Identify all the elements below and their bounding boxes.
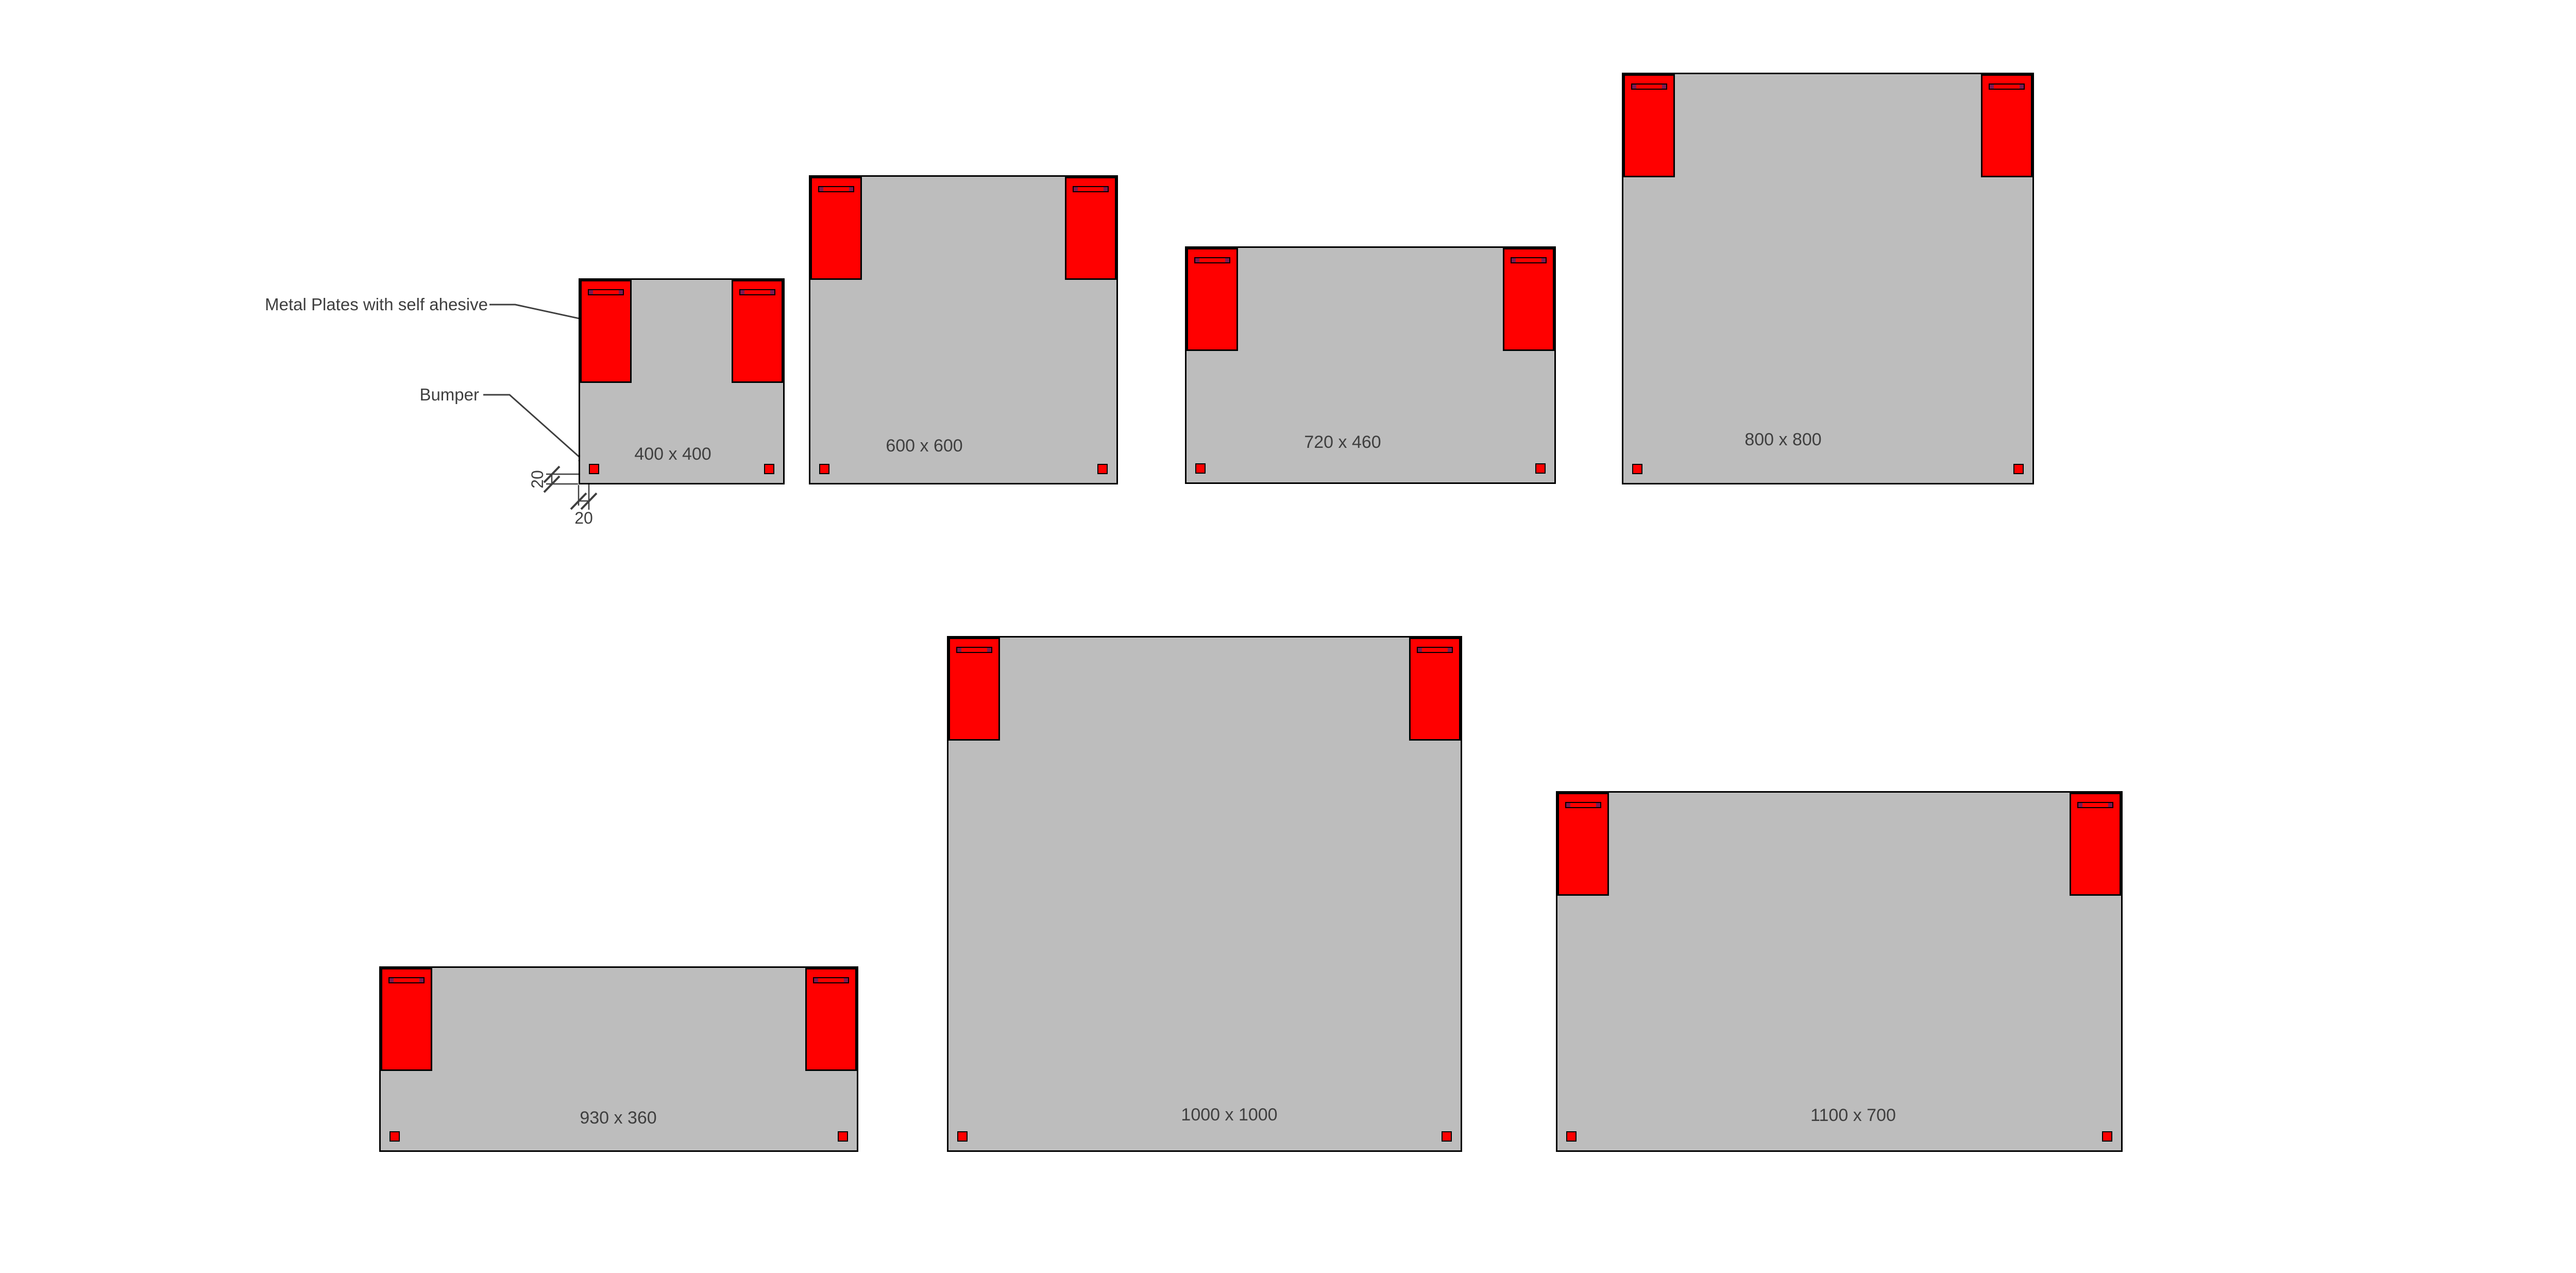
plate-slot: [818, 186, 854, 192]
panel-size-label: 800 x 800: [1744, 431, 1821, 448]
panel-size-label: 600 x 600: [886, 437, 962, 455]
slot-pin-icon: [1074, 187, 1078, 191]
bumper-right: [1097, 464, 1108, 474]
slot-pin-icon: [1448, 648, 1452, 652]
metal-plate-left: [381, 968, 432, 1071]
metal-plate-right: [805, 968, 857, 1071]
bumper-left: [1566, 1131, 1577, 1142]
plate-slot: [1989, 83, 2025, 90]
plate-slot: [1073, 186, 1109, 192]
slot-pin-icon: [1566, 803, 1570, 807]
dim-text-side-offset: 20: [563, 509, 604, 527]
slot-pin-icon: [1662, 85, 1666, 89]
slot-pin-icon: [589, 290, 593, 294]
panel-size-label: 1000 x 1000: [1181, 1106, 1277, 1124]
metal-plate-right: [1065, 177, 1116, 280]
bumper-left: [957, 1131, 968, 1142]
slot-pin-icon: [770, 290, 774, 294]
metal-plate-left: [1557, 793, 1609, 896]
slot-pin-icon: [619, 290, 623, 294]
plate-slot: [388, 977, 425, 983]
metal-plate-left: [1623, 74, 1675, 177]
slot-pin-icon: [1104, 187, 1108, 191]
slot-pin-icon: [814, 978, 818, 982]
metal-plate-right: [2070, 793, 2121, 896]
slot-pin-icon: [389, 978, 394, 982]
dim-text-bottom-offset: 20: [529, 459, 546, 500]
plate-slot: [1511, 257, 1547, 263]
bumper-leader-line: [483, 395, 585, 462]
metal-plates-leader-line: [489, 305, 594, 322]
slot-pin-icon: [1225, 258, 1229, 262]
bumper-right: [1535, 463, 1546, 474]
metal-plate-right: [1409, 638, 1461, 741]
bumper-right: [764, 464, 774, 474]
panel-size-label: 720 x 460: [1304, 433, 1381, 451]
slot-pin-icon: [849, 187, 853, 191]
bumper-left: [589, 464, 599, 474]
metal-plate-right: [1503, 248, 1554, 351]
panel-1000x1000: 1000 x 1000: [947, 636, 1462, 1152]
slot-pin-icon: [2020, 85, 2024, 89]
slot-pin-icon: [2078, 803, 2082, 807]
bumper-label: Bumper: [222, 386, 479, 404]
panel-600x600: 600 x 600: [809, 175, 1118, 484]
bumper-right: [838, 1131, 848, 1142]
plate-slot: [739, 289, 775, 295]
bumper-left: [1195, 463, 1206, 474]
bumper-left: [819, 464, 829, 474]
plate-slot: [1565, 802, 1601, 808]
panel-1100x700: 1100 x 700: [1556, 791, 2123, 1152]
panel-400x400: 400 x 400: [579, 278, 785, 484]
plate-slot: [1631, 83, 1667, 90]
slot-pin-icon: [1195, 258, 1199, 262]
plate-slot: [588, 289, 624, 295]
panel-720x460: 720 x 460: [1185, 246, 1556, 484]
slot-pin-icon: [1990, 85, 1994, 89]
bumper-left: [1632, 464, 1642, 474]
metal-plates-label: Metal Plates with self ahesive: [179, 295, 488, 314]
plate-slot: [1417, 647, 1453, 653]
slot-pin-icon: [1596, 803, 1600, 807]
slot-pin-icon: [844, 978, 848, 982]
bumper-right: [2102, 1131, 2112, 1142]
slot-pin-icon: [1632, 85, 1636, 89]
bumper-right: [2013, 464, 2024, 474]
slot-pin-icon: [957, 648, 961, 652]
plate-slot: [813, 977, 849, 983]
slot-pin-icon: [1541, 258, 1546, 262]
slot-pin-icon: [419, 978, 423, 982]
slot-pin-icon: [1512, 258, 1516, 262]
slot-pin-icon: [987, 648, 991, 652]
slot-pin-icon: [819, 187, 823, 191]
panel-size-label: 1100 x 700: [1810, 1107, 1896, 1124]
metal-plate-left: [948, 638, 1000, 741]
metal-plate-right: [732, 280, 783, 383]
slot-pin-icon: [1418, 648, 1422, 652]
bumper-right: [1442, 1131, 1452, 1142]
panel-size-label: 930 x 360: [580, 1109, 656, 1127]
plate-slot: [1194, 257, 1230, 263]
slot-pin-icon: [740, 290, 744, 294]
plate-slot: [2077, 802, 2113, 808]
panel-size-label: 400 x 400: [634, 445, 711, 463]
metal-plate-right: [1981, 74, 2032, 177]
bumper-left: [389, 1131, 400, 1142]
panel-800x800: 800 x 800: [1622, 73, 2034, 484]
slot-pin-icon: [2108, 803, 2112, 807]
metal-plate-left: [810, 177, 862, 280]
metal-plate-left: [1187, 248, 1238, 351]
panel-930x360: 930 x 360: [379, 966, 858, 1152]
metal-plate-left: [580, 280, 632, 383]
diagram-canvas: Metal Plates with self ahesive Bumper 20…: [0, 0, 2576, 1273]
plate-slot: [956, 647, 992, 653]
